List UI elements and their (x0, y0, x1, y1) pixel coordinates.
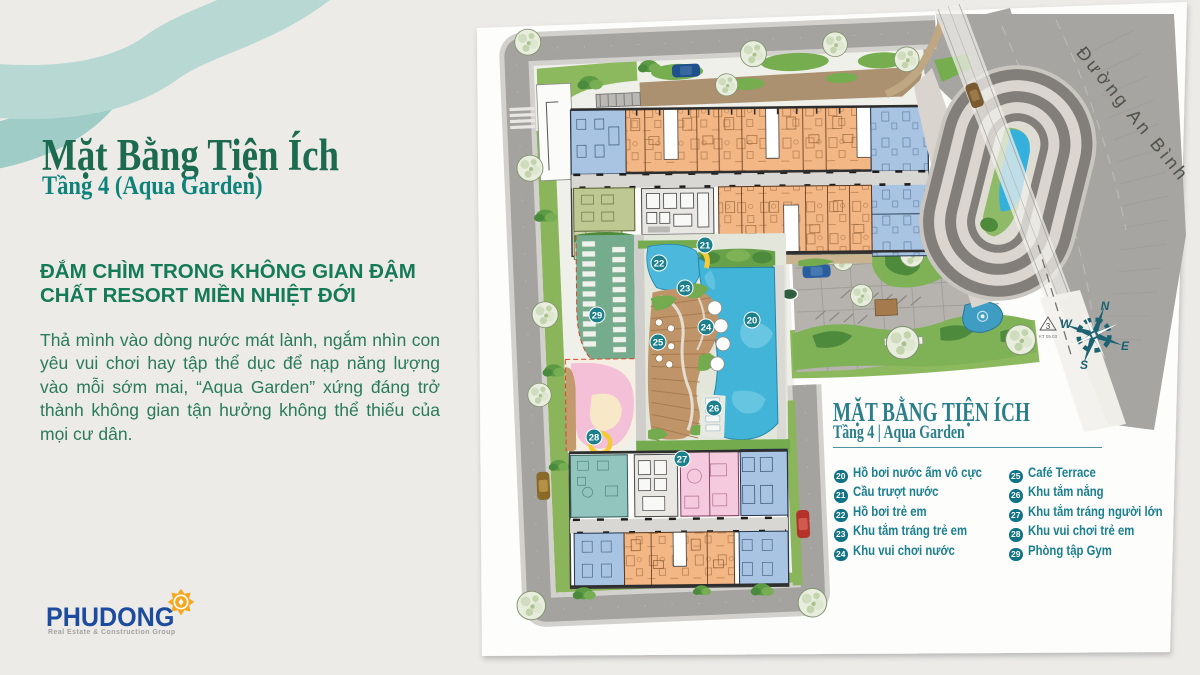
svg-text:26: 26 (709, 404, 720, 415)
svg-text:E: E (1121, 339, 1130, 353)
svg-text:28: 28 (589, 433, 600, 444)
svg-text:N: N (1101, 299, 1110, 313)
svg-text:20: 20 (747, 316, 758, 327)
svg-text:29: 29 (592, 311, 603, 322)
svg-text:27: 27 (677, 455, 688, 466)
svg-text:25: 25 (653, 338, 664, 349)
svg-text:24: 24 (701, 323, 712, 334)
svg-text:S: S (1080, 358, 1088, 372)
svg-text:23: 23 (680, 284, 691, 295)
svg-text:KT 05.03: KT 05.03 (1039, 334, 1058, 339)
svg-text:21: 21 (700, 241, 711, 252)
svg-text:W: W (1060, 317, 1073, 331)
svg-text:22: 22 (654, 259, 665, 270)
svg-text:3: 3 (1046, 322, 1051, 331)
